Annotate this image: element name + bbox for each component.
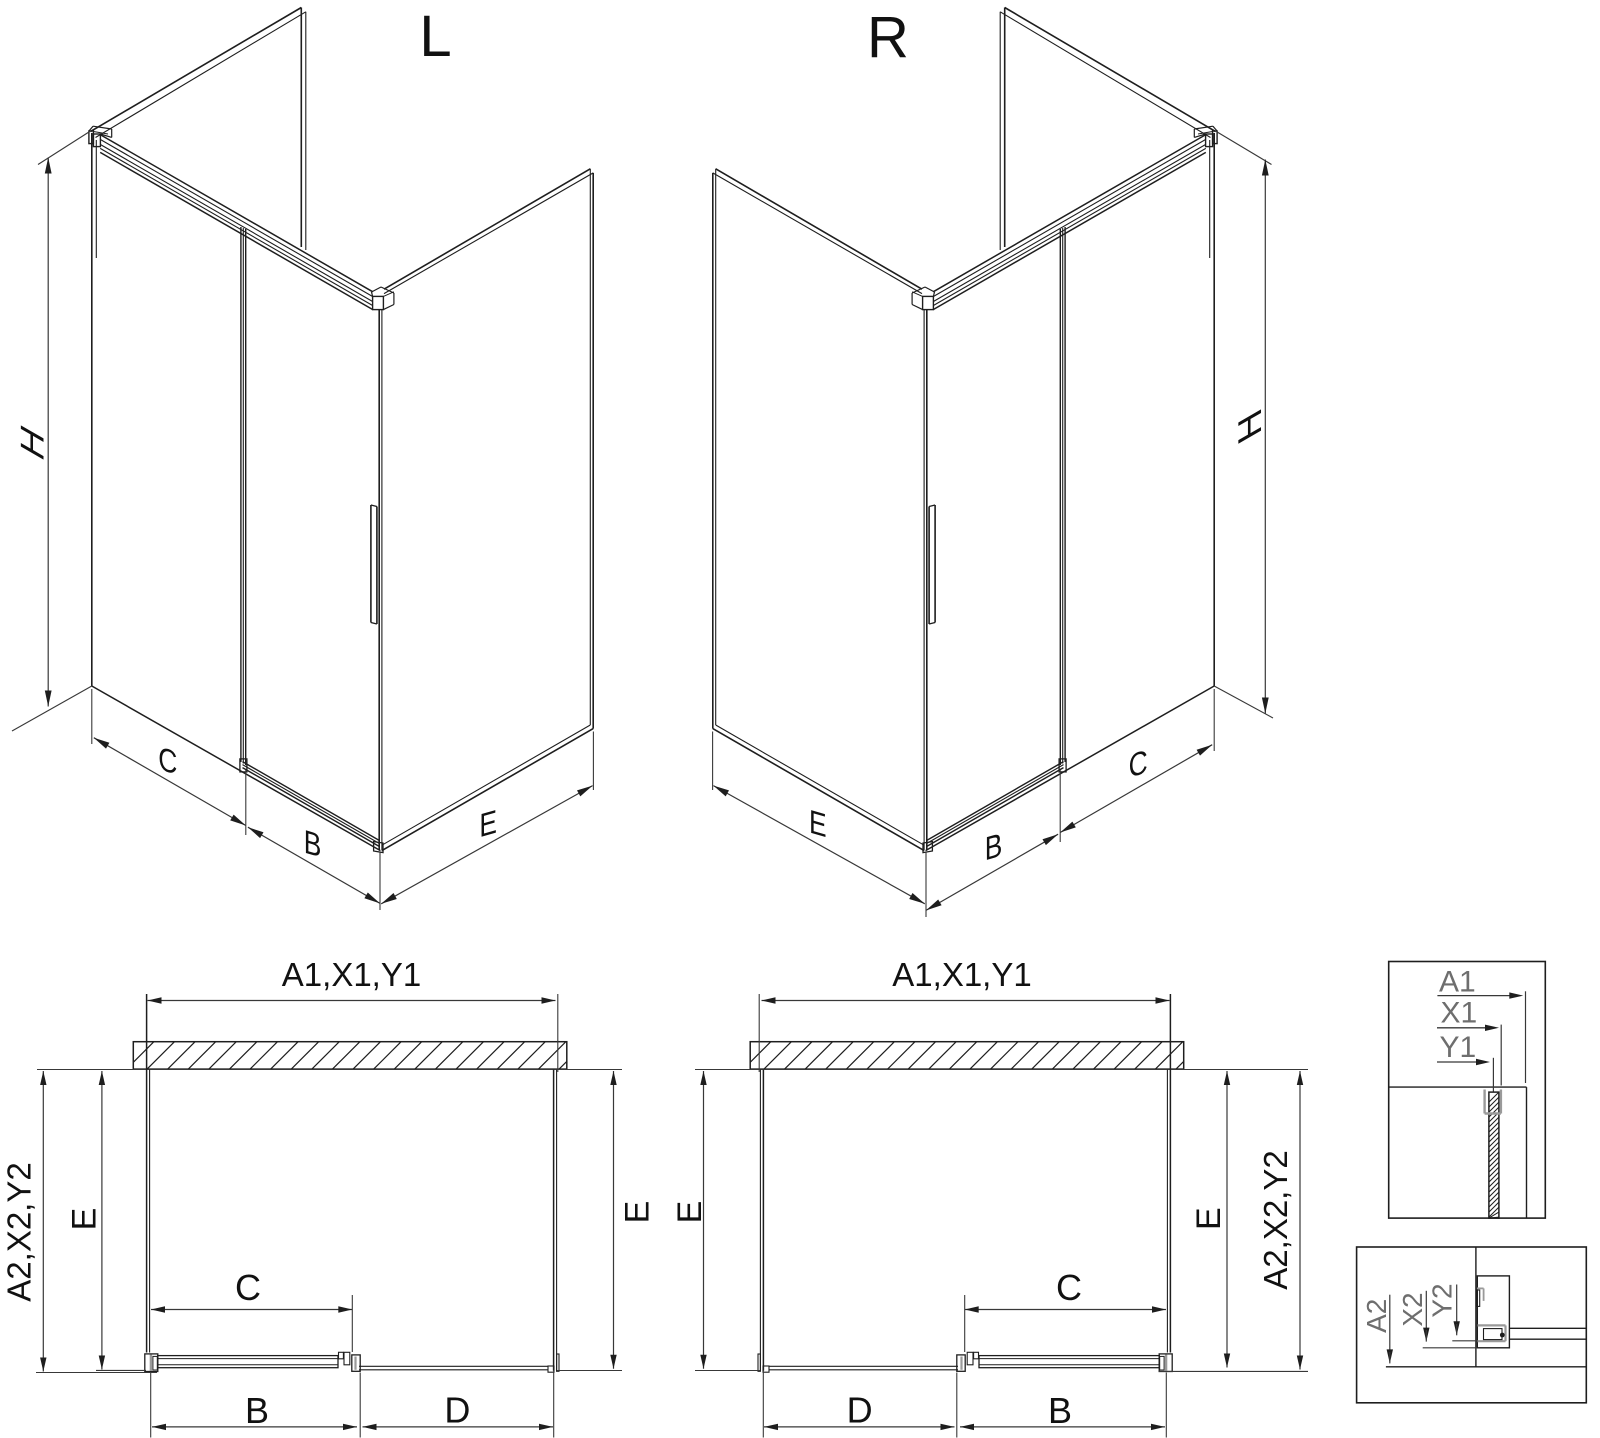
svg-text:A2,X2,Y2: A2,X2,Y2 <box>1 1162 38 1301</box>
svg-text:Y1: Y1 <box>1440 1031 1477 1064</box>
svg-text:X1: X1 <box>1441 997 1478 1030</box>
svg-text:B: B <box>1048 1390 1072 1431</box>
svg-text:Y2: Y2 <box>1427 1283 1458 1317</box>
svg-text:A1: A1 <box>1439 965 1476 998</box>
svg-text:B: B <box>985 827 1003 868</box>
svg-text:C: C <box>158 741 177 782</box>
svg-text:E: E <box>809 804 827 845</box>
svg-text:C: C <box>1129 744 1148 785</box>
svg-text:E: E <box>479 804 497 845</box>
svg-text:R: R <box>867 5 909 70</box>
svg-text:B: B <box>304 824 322 865</box>
svg-text:A1,X1,Y1: A1,X1,Y1 <box>892 956 1031 993</box>
svg-text:A1,X1,Y1: A1,X1,Y1 <box>282 956 421 993</box>
svg-text:E: E <box>65 1208 103 1231</box>
svg-text:D: D <box>847 1390 873 1431</box>
svg-text:E: E <box>619 1201 657 1224</box>
svg-text:A2,X2,Y2: A2,X2,Y2 <box>1257 1150 1294 1289</box>
svg-text:C: C <box>235 1267 261 1308</box>
svg-text:X2: X2 <box>1397 1292 1428 1326</box>
svg-text:D: D <box>444 1390 470 1431</box>
svg-text:B: B <box>245 1390 269 1431</box>
svg-text:E: E <box>1190 1207 1228 1230</box>
svg-text:E: E <box>671 1201 709 1224</box>
svg-text:A2: A2 <box>1361 1299 1392 1333</box>
svg-text:L: L <box>419 4 451 69</box>
svg-text:C: C <box>1056 1267 1082 1308</box>
